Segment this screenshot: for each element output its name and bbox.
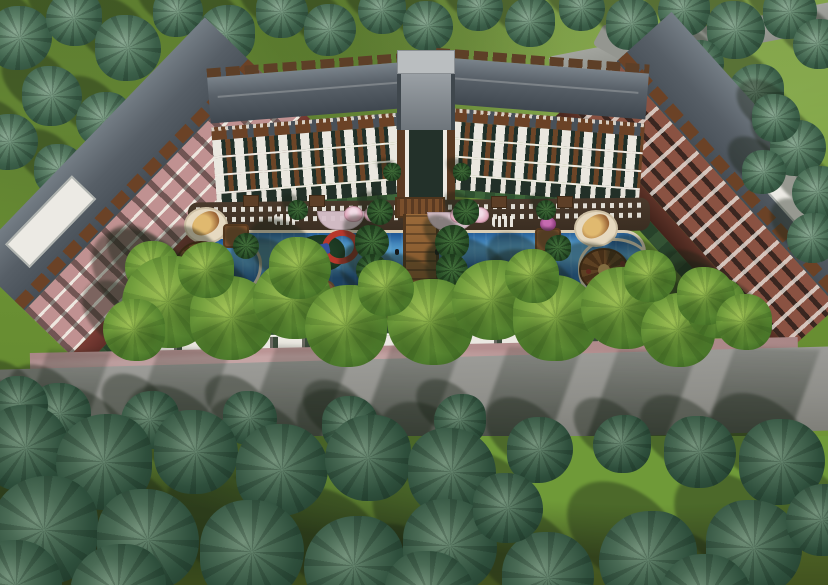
forest-floor bbox=[0, 436, 828, 585]
render-canvas bbox=[0, 0, 828, 585]
